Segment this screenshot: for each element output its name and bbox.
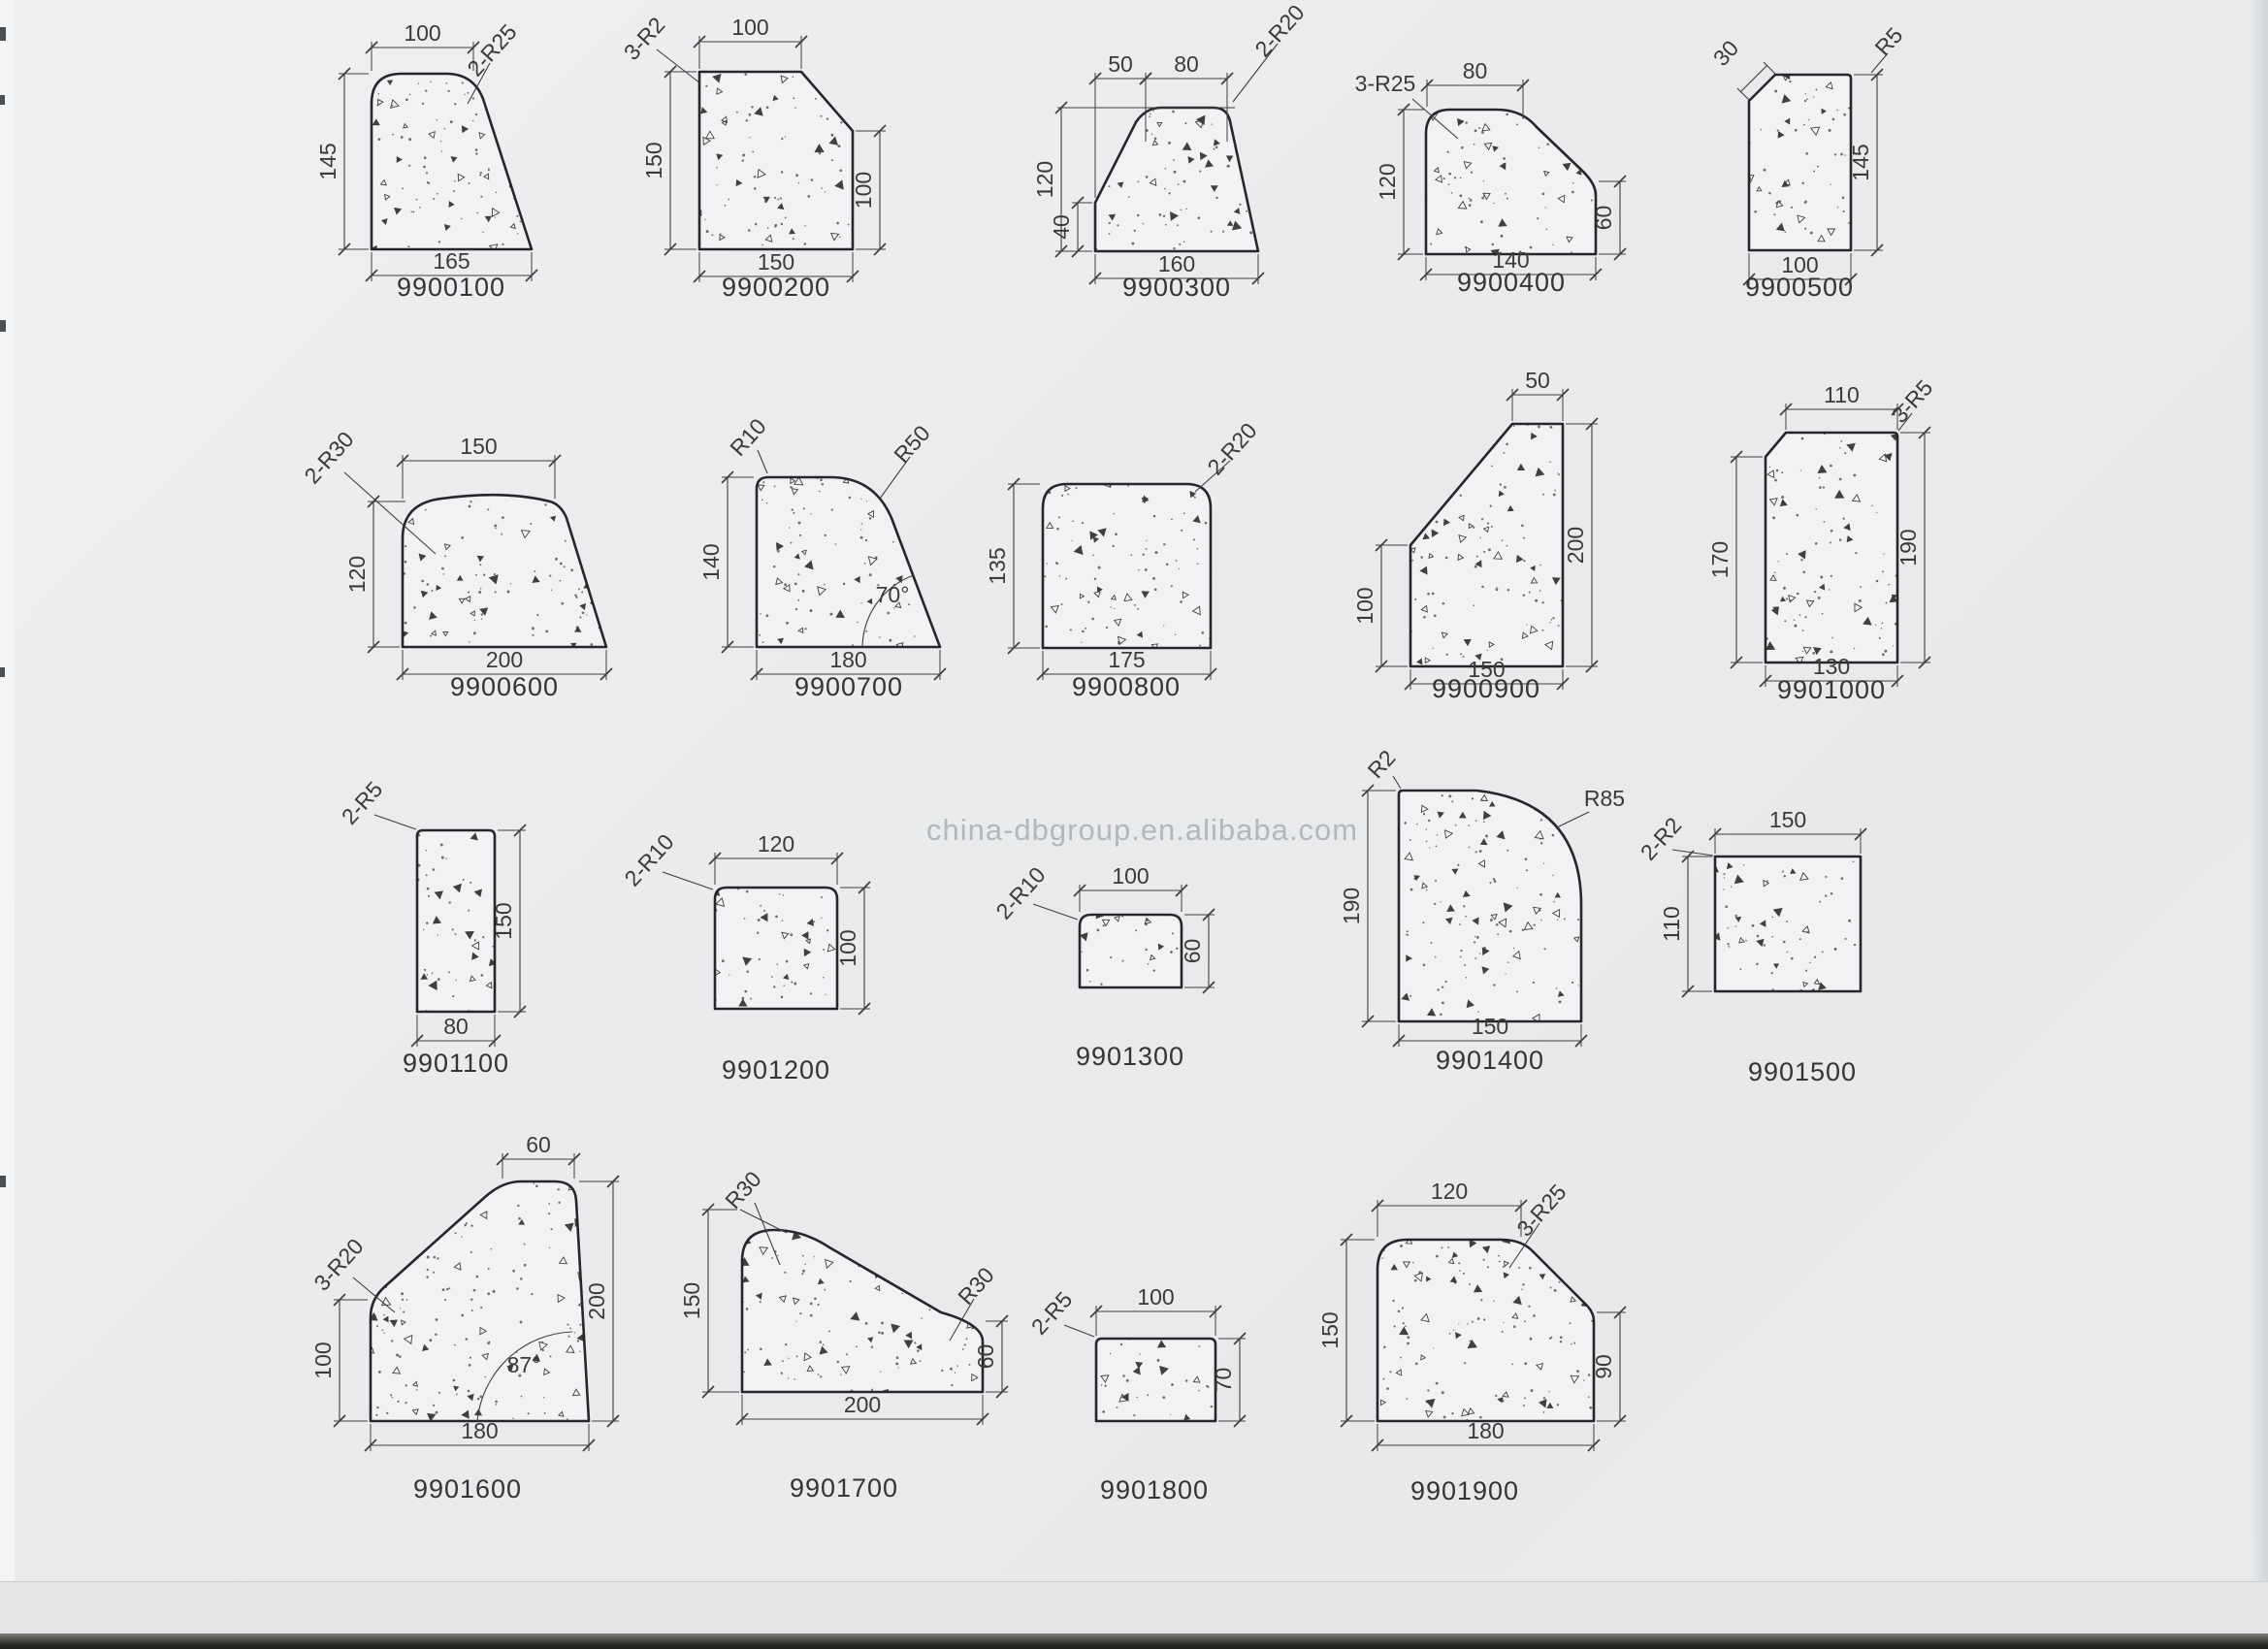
part-number: 9901700: [790, 1473, 898, 1503]
dim-label: 120: [1032, 161, 1057, 198]
dim-label: 70°: [876, 582, 910, 607]
dim-label: 2-R5: [1026, 1286, 1078, 1339]
dim-label: 100: [731, 15, 768, 40]
figure-9901800: 1002-R5709901800: [1026, 1284, 1246, 1504]
leader-line: [1393, 776, 1401, 789]
dim-label: 145: [1848, 144, 1873, 180]
part-number: 9900400: [1457, 268, 1566, 297]
dim-label: 60: [973, 1344, 998, 1370]
dim-label: R50: [889, 420, 935, 468]
dim-label: 120: [1431, 1179, 1468, 1204]
scan-artifact: [0, 1176, 6, 1187]
dim-label: 2-R20: [1202, 418, 1261, 480]
leader-line: [663, 872, 713, 889]
dim-label: 90: [1591, 1354, 1616, 1379]
dim-label: 150: [1769, 807, 1806, 832]
scan-artifact: [0, 95, 5, 105]
dim-label: 175: [1108, 647, 1145, 672]
figure-9900300: 5080120401602-R209900300: [1032, 0, 1310, 302]
dim-label: 100: [1112, 863, 1149, 889]
dim-label: 120: [758, 831, 794, 857]
part-number: 9900800: [1072, 672, 1181, 701]
dim-label: 180: [461, 1418, 498, 1443]
part-number: 9901500: [1748, 1057, 1857, 1086]
figure-9900700: R10R5014018070°9900700: [698, 413, 946, 701]
part-number: 9901800: [1100, 1475, 1209, 1504]
dim-label: 180: [829, 647, 866, 672]
dim-label: 50: [1525, 368, 1550, 393]
dim-label: R2: [1363, 745, 1401, 783]
dim-label: 80: [443, 1014, 469, 1039]
figure-9901600: 603-R2010020018087°9901600: [308, 1132, 619, 1503]
dim-label: 100: [1137, 1284, 1174, 1309]
dim-label: 150: [1317, 1311, 1343, 1348]
scan-artifact: [0, 27, 6, 41]
part-number: 9900300: [1122, 273, 1231, 302]
scan-bottom-band: [0, 1581, 2268, 1636]
dim-label: 2-R10: [990, 862, 1050, 924]
part-number: 9900600: [450, 672, 559, 701]
figure-9900900: 501002001509900900: [1352, 368, 1598, 703]
scan-bottom-edge: [0, 1633, 2268, 1649]
dim-label: 165: [433, 248, 470, 274]
dim-label: 2-R10: [619, 829, 678, 891]
dim-label: 3-R5: [1887, 374, 1938, 427]
dim-label: 180: [1467, 1418, 1504, 1443]
dim-label: 150: [641, 142, 666, 178]
scanned-catalog-page: 1002-R2514516599001001003-R2150100150990…: [0, 0, 2268, 1649]
dim-label: 100: [835, 929, 860, 966]
dim-label: 120: [1375, 163, 1400, 200]
dim-label: 190: [1895, 529, 1921, 566]
dim-label: 80: [1463, 58, 1488, 83]
figure-9900200: 1003-R21501001509900200: [619, 12, 886, 302]
figure-9901500: 1502-R21109901500: [1636, 807, 1866, 1086]
part-number: 9900200: [722, 273, 830, 302]
dim-label: 100: [310, 1342, 336, 1378]
leader-line: [374, 815, 416, 829]
dim-label: 3-R2: [619, 12, 670, 64]
dim-label: 50: [1108, 51, 1133, 77]
dim-label: 100: [404, 20, 440, 46]
dim-label: 150: [491, 902, 516, 939]
figure-9901700: 150R30R30602009901700: [679, 1166, 1008, 1503]
figure-9901900: 1203-R25150901809901900: [1317, 1179, 1626, 1505]
scan-artifact: [0, 667, 5, 677]
dim-label: 3-R20: [308, 1234, 368, 1296]
dim-label: 30: [1708, 35, 1743, 70]
dim-label: 150: [460, 434, 497, 459]
dim-label: R30: [953, 1262, 999, 1309]
leader-line: [758, 450, 767, 473]
scan-left-edge: [0, 0, 15, 1649]
dim-label: 2-R20: [1249, 0, 1309, 62]
dim-label: 110: [1659, 906, 1684, 942]
part-number: 9901100: [403, 1049, 509, 1078]
part-number: 9900700: [794, 672, 903, 701]
dim-label: 145: [315, 143, 340, 179]
dim-label: 2-R30: [299, 427, 358, 489]
dim-label: R85: [1584, 786, 1625, 811]
figure-9901400: R2R851901509901400: [1339, 745, 1625, 1075]
dim-label: 150: [1472, 1014, 1508, 1039]
watermark: china-dbgroup.en.alibaba.com: [926, 813, 1344, 848]
part-number: 9900500: [1745, 273, 1854, 302]
dim-label: 150: [679, 1282, 704, 1319]
figure-9900800: 1351752-R209900800: [985, 418, 1262, 701]
leader-line: [740, 1210, 787, 1233]
leader-line: [1064, 1325, 1094, 1337]
dim-label: 80: [1174, 51, 1199, 77]
dim-label: 110: [1824, 382, 1860, 407]
figure-9901000: 1103-R51701901309901000: [1707, 374, 1937, 704]
dim-label: 150: [758, 249, 794, 275]
dim-label: 190: [1339, 888, 1364, 924]
dim-label: 100: [851, 172, 876, 209]
dim-label: 60: [1591, 206, 1616, 231]
part-number: 9901900: [1410, 1476, 1519, 1505]
part-number: 9901000: [1777, 675, 1886, 704]
figure-9901200: 1202-R101009901200: [619, 829, 870, 1084]
dim-label: 200: [1563, 527, 1588, 564]
dim-label: 2-R2: [1636, 812, 1687, 864]
leader-line: [1557, 812, 1589, 827]
dim-label: R10: [725, 413, 771, 461]
figure-9900600: 1502-R301202009900600: [299, 427, 612, 701]
dim-label: 70: [1211, 1368, 1236, 1393]
figure-9900500: 30R51451009900500: [1708, 22, 1908, 302]
dim-label: 120: [344, 556, 370, 593]
figure-9900100: 1002-R251451659900100: [315, 19, 537, 302]
dim-label: 100: [1352, 587, 1377, 624]
dim-label: R30: [720, 1166, 766, 1213]
leader-line: [1033, 904, 1078, 920]
part-number: 9901200: [722, 1055, 830, 1084]
figure-9901300: 1002-R10609901300: [990, 862, 1215, 1071]
dim-label: 87°: [507, 1352, 541, 1377]
part-number: 9901300: [1076, 1042, 1184, 1071]
figure-9900400: 3-R2580120601409900400: [1355, 58, 1626, 297]
part-number: 9901600: [413, 1474, 522, 1503]
leader-line: [657, 49, 700, 83]
dim-label: 60: [1180, 939, 1205, 964]
dim-label: 140: [698, 543, 724, 580]
part-number: 9900100: [397, 273, 505, 302]
dim-label: 2-R5: [337, 776, 388, 828]
dim-label: 135: [985, 547, 1010, 584]
dim-label: R5: [1870, 22, 1908, 60]
part-number: 9900900: [1432, 674, 1540, 703]
dim-label: 40: [1049, 214, 1074, 240]
scan-artifact: [0, 320, 6, 332]
figure-9901100: 2-R5150809901100: [337, 776, 526, 1078]
part-number: 9901400: [1436, 1046, 1544, 1075]
dim-label: 3-R25: [1355, 71, 1416, 96]
dim-label: 60: [526, 1132, 551, 1157]
scan-right-edge: [2251, 0, 2268, 1649]
dim-label: 200: [844, 1392, 881, 1417]
dim-label: 200: [584, 1282, 609, 1319]
dim-label: 170: [1707, 541, 1733, 578]
dim-label: 200: [486, 647, 523, 672]
